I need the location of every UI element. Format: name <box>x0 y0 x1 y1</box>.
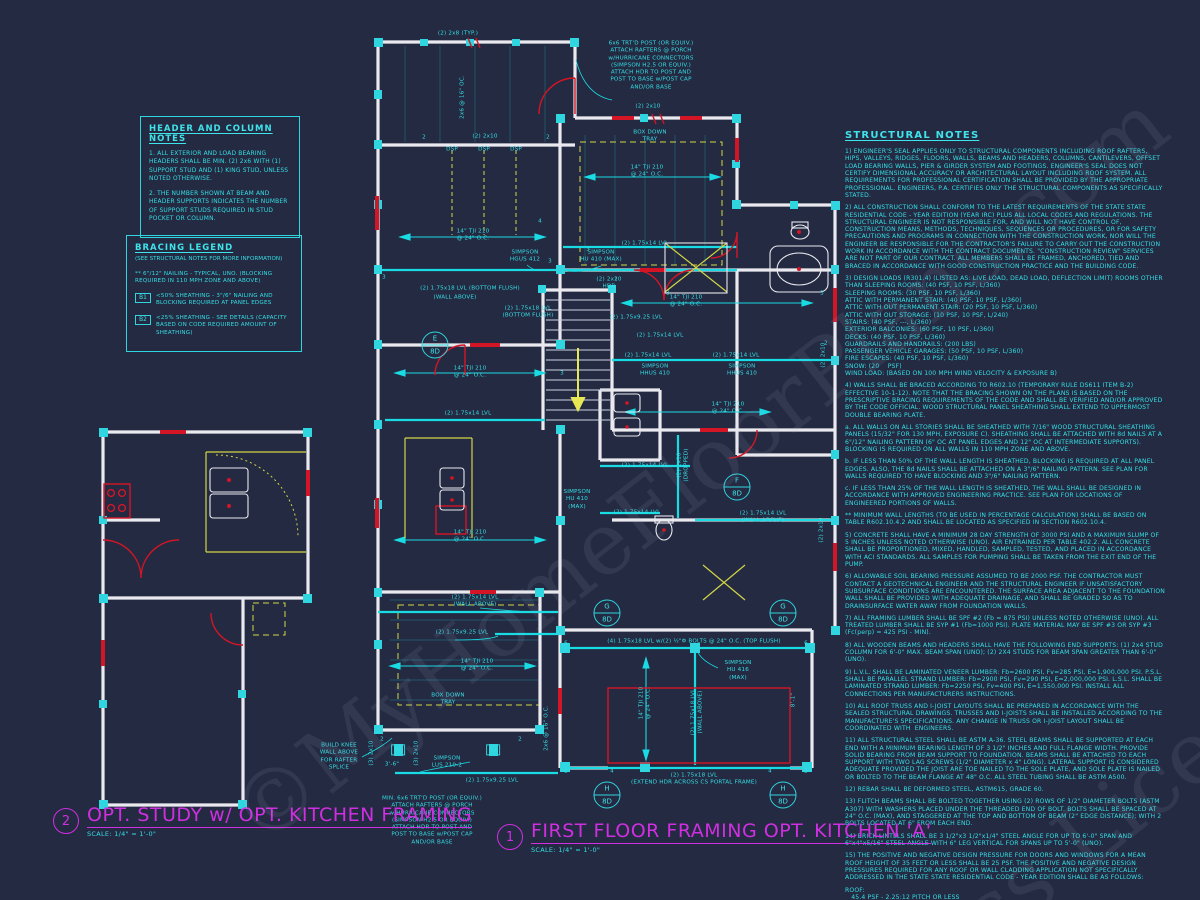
structural-note-paragraph: ROOF: 45.4 PSF - 2.25:12 PITCH OR LESS 3… <box>845 887 1165 900</box>
bracing-row-text: <25% SHEATHING - SEE DETAILS (CAPACITY B… <box>156 315 293 338</box>
structural-note-paragraph: 2) ALL CONSTRUCTION SHALL CONFORM TO THE… <box>845 204 1165 270</box>
structural-note-paragraph: 8) ALL WOODEN BEAMS AND HEADERS SHALL HA… <box>845 642 1165 664</box>
sheet-title-label: OPT. STUDY w/ OPT. KITCHEN FRAMING <box>87 804 472 828</box>
sheet-number-circle: 2 <box>53 808 79 834</box>
structural-note-paragraph: 5) CONCRETE SHALL HAVE A MINIMUM 28 DAY … <box>845 532 1165 569</box>
structural-notes: STRUCTURAL NOTES 1) ENGINEER'S SEAL APPL… <box>845 130 1165 900</box>
bracing-row: B2 <25% SHEATHING - SEE DETAILS (CAPACIT… <box>135 315 293 338</box>
structural-note-paragraph: ** MINIMUM WALL LENGTHS (TO BE USED IN P… <box>845 512 1165 527</box>
header-note-2: 2. THE NUMBER SHOWN AT BEAM AND HEADER S… <box>149 190 291 223</box>
sheet-title-1: 1 FIRST FLOOR FRAMING OPT. KITCHEN 'A' S… <box>497 820 931 854</box>
structural-note-paragraph: 7) ALL FRAMING LUMBER SHALL BE SPF #2 (F… <box>845 615 1165 637</box>
sheet-scale: SCALE: 1/4" = 1'-0" <box>531 846 931 854</box>
structural-note-paragraph: 10) ALL ROOF TRUSS AND I-JOIST LAYOUTS S… <box>845 703 1165 732</box>
structural-notes-title: STRUCTURAL NOTES <box>845 130 1165 141</box>
sheet-title-label: FIRST FLOOR FRAMING OPT. KITCHEN 'A' <box>531 820 931 844</box>
bracing-tag-b1: B1 <box>135 293 151 303</box>
structural-note-paragraph: 6) ALLOWABLE SOIL BEARING PRESSURE ASSUM… <box>845 573 1165 610</box>
structural-note-paragraph: 1) ENGINEER'S SEAL APPLIES ONLY TO STRUC… <box>845 148 1165 199</box>
header-note-1: 1. ALL EXTERIOR AND LOAD BEARING HEADERS… <box>149 150 291 183</box>
bracing-legend-subtitle: (SEE STRUCTURAL NOTES FOR MORE INFORMATI… <box>135 256 293 264</box>
structural-note-paragraph: 12) REBAR SHALL BE DEFORMED STEEL, ASTM6… <box>845 786 1165 793</box>
bracing-legend-title: BRACING LEGEND <box>135 243 293 253</box>
structural-notes-list: 1) ENGINEER'S SEAL APPLIES ONLY TO STRUC… <box>845 148 1165 900</box>
bracing-tag-b2: B2 <box>135 315 151 325</box>
sheet-scale: SCALE: 1/4" = 1'-0" <box>87 830 472 838</box>
structural-note-paragraph: b. IF LESS THAN 50% OF THE WALL LENGTH I… <box>845 458 1165 480</box>
sheet-title-2: 2 OPT. STUDY w/ OPT. KITCHEN FRAMING SCA… <box>53 804 472 838</box>
bracing-row: ** 6"/12" NAILING - TYPICAL, UNO. (BLOCK… <box>135 271 293 286</box>
structural-note-paragraph: 4) WALLS SHALL BE BRACED ACCORDING TO R6… <box>845 382 1165 419</box>
bracing-row: B1 <50% SHEATHING - 3"/6" NAILING AND BL… <box>135 293 293 308</box>
structural-note-paragraph: 9) L.V.L. SHALL BE LAMINATED VENEER LUMB… <box>845 669 1165 698</box>
structural-note-paragraph: 3) DESIGN LOADS (R301.4) (LISTED AS: LIV… <box>845 275 1165 377</box>
structural-note-paragraph: c. IF LESS THAN 25% OF THE WALL LENGTH I… <box>845 485 1165 507</box>
structural-note-paragraph: 15) THE POSITIVE AND NEGATIVE DESIGN PRE… <box>845 852 1165 881</box>
structural-note-paragraph: 11) ALL STRUCTURAL STEEL SHALL BE ASTM A… <box>845 737 1165 781</box>
sheet-number-circle: 1 <box>497 824 523 850</box>
header-column-notes-title: HEADER AND COLUMN NOTES <box>149 124 291 144</box>
structural-note-paragraph: a. ALL WALLS ON ALL STORIES SHALL BE SHE… <box>845 424 1165 453</box>
bracing-row-text: ** 6"/12" NAILING - TYPICAL, UNO. (BLOCK… <box>135 271 293 286</box>
bracing-row-text: <50% SHEATHING - 3"/6" NAILING AND BLOCK… <box>156 293 293 308</box>
blueprint-sheet: 6x6 TRT'D POST (OR EQUIV.) ATTACH RAFTER… <box>0 0 1200 900</box>
bracing-legend-box: BRACING LEGEND (SEE STRUCTURAL NOTES FOR… <box>126 235 302 352</box>
header-column-notes-box: HEADER AND COLUMN NOTES 1. ALL EXTERIOR … <box>140 116 300 238</box>
